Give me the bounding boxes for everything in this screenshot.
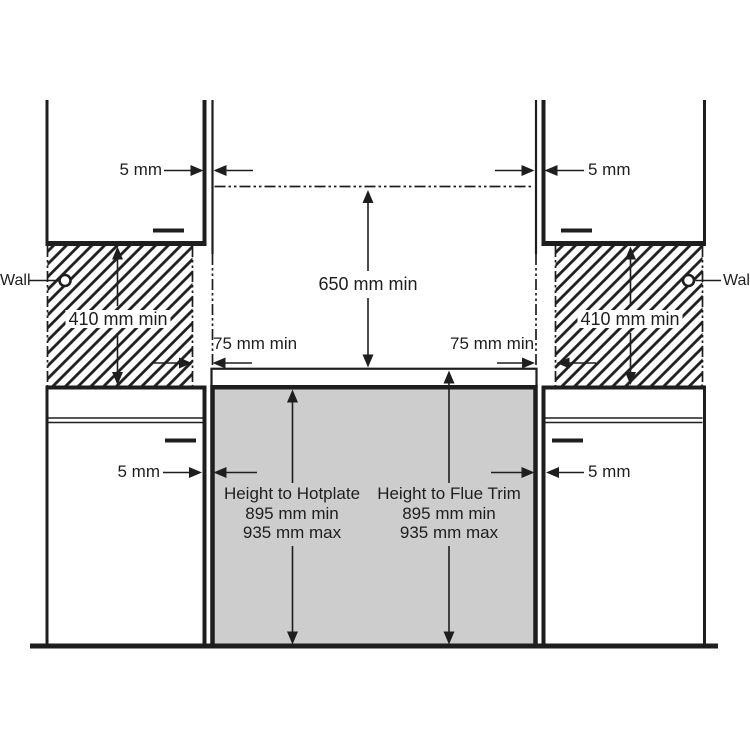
side-gap-label-right: 75 mm min bbox=[450, 335, 533, 353]
wall-marker-circle bbox=[60, 275, 71, 286]
height-to-flue-trim-title: Height to Flue Trim bbox=[377, 484, 521, 504]
height-to-flue-trim-max: 935 mm max bbox=[377, 523, 521, 543]
wall-marker-circle bbox=[683, 275, 694, 286]
overhead-clearance-label: 650 mm min bbox=[315, 275, 420, 293]
height-to-hotplate-min: 895 mm min bbox=[224, 504, 360, 524]
arrowhead-left bbox=[545, 165, 558, 176]
side-gap-label-left: 75 mm min bbox=[213, 335, 297, 353]
height-to-hotplate-title: Height to Hotplate bbox=[224, 484, 360, 504]
dim-top-left-5mm bbox=[164, 165, 253, 176]
arrowhead-right bbox=[522, 165, 535, 176]
dim-top-right-5mm bbox=[495, 165, 584, 176]
gap-label-bottom-left: 5 mm bbox=[114, 463, 160, 481]
arrowhead-left bbox=[213, 358, 226, 369]
lower-right-cabinet bbox=[542, 386, 707, 648]
wall-label-left: Wall bbox=[0, 272, 31, 290]
arrowhead-right bbox=[522, 358, 535, 369]
arrowhead-right bbox=[189, 467, 202, 478]
height-to-flue-trim-min: 895 mm min bbox=[377, 504, 521, 524]
height-to-flue-trim-label: Height to Flue Trim 895 mm min 935 mm ma… bbox=[377, 484, 521, 543]
flue-trim-strip bbox=[212, 369, 537, 387]
height-to-hotplate-label: Height to Hotplate 895 mm min 935 mm max bbox=[224, 484, 360, 543]
lower-left-cabinet bbox=[46, 386, 207, 648]
wall-label-right: Wall bbox=[723, 272, 750, 290]
gap-label-top-left: 5 mm bbox=[117, 161, 162, 179]
arrowhead-left bbox=[546, 467, 559, 478]
height-to-hotplate-max: 935 mm max bbox=[224, 523, 360, 543]
gap-label-bottom-right: 5 mm bbox=[588, 463, 631, 481]
diagram-linework bbox=[0, 0, 750, 750]
gap-label-top-right: 5 mm bbox=[588, 161, 631, 179]
arrowhead-down bbox=[363, 355, 374, 368]
arrowhead-left bbox=[214, 165, 227, 176]
installation-diagram: 5 mm 5 mm Wall Wall 410 mm min 410 mm mi… bbox=[0, 0, 750, 750]
arrowhead-right bbox=[191, 165, 204, 176]
side-clearance-label-right: 410 mm min bbox=[577, 310, 682, 328]
cooker-side-planes bbox=[213, 100, 537, 368]
side-clearance-label-left: 410 mm min bbox=[65, 310, 170, 328]
